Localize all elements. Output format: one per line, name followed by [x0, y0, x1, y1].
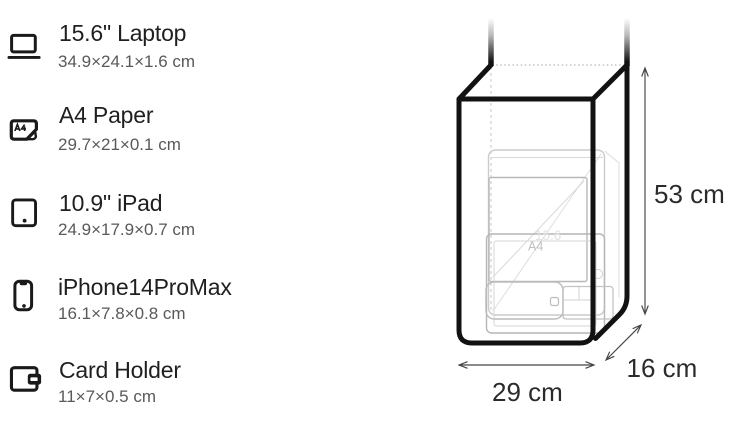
- svg-text:15.6: 15.6: [535, 228, 561, 243]
